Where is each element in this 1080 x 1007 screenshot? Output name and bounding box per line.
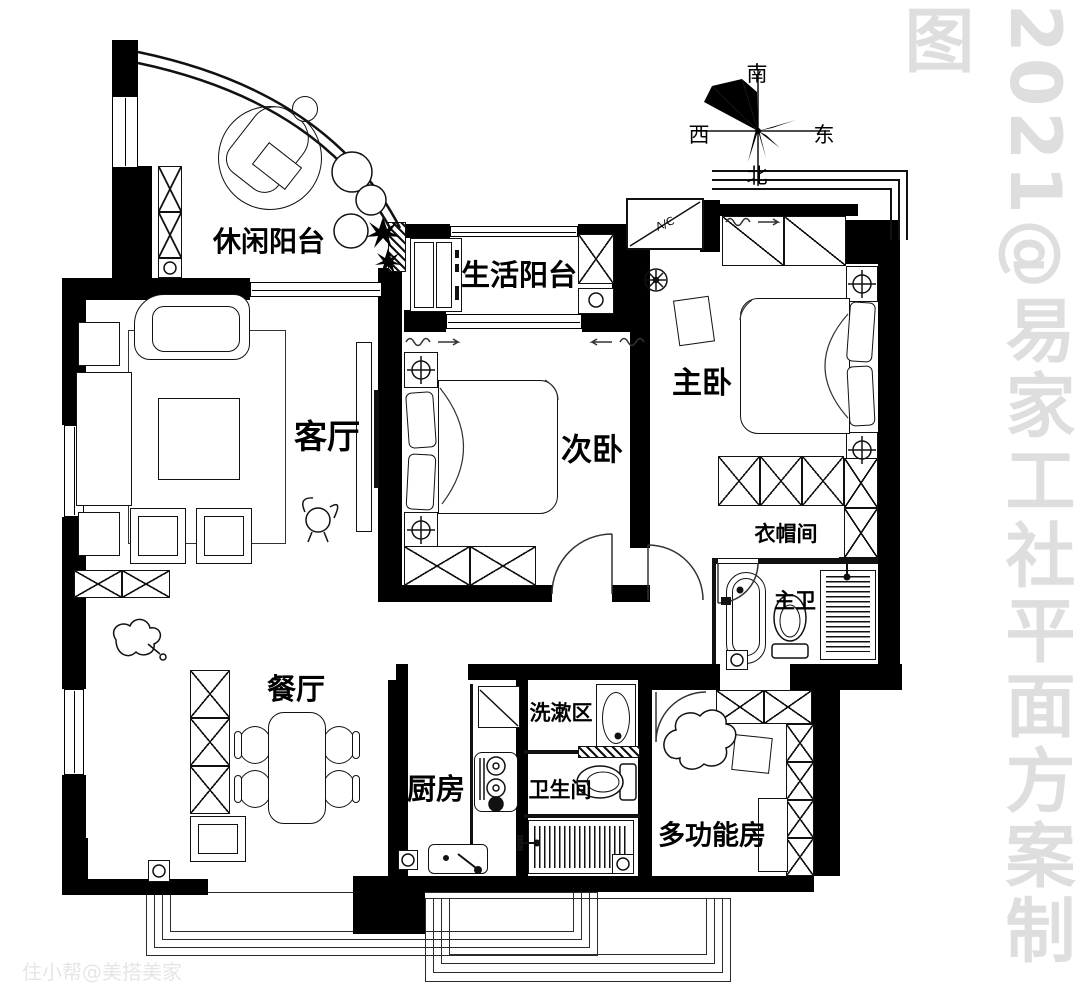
wardrobe-cell [784, 216, 846, 266]
window [64, 689, 84, 775]
wardrobe-cell [716, 690, 764, 724]
compass-south-label: 南 [747, 58, 768, 88]
cabinet-column [190, 766, 230, 814]
dining-chair [238, 770, 272, 808]
sliding-window [446, 314, 582, 329]
wardrobe-cell [844, 458, 878, 508]
cabinet [158, 258, 182, 278]
bay-window-line [712, 188, 892, 190]
room-label-master-bedroom: 主卧 [672, 358, 732, 402]
wardrobe-cell [786, 800, 814, 838]
threshold-hatch [578, 746, 640, 758]
room-label-second-bedroom: 次卧 [561, 425, 623, 470]
floor-plan: A/C [0, 0, 1080, 1007]
wall [712, 564, 716, 680]
stove [474, 752, 518, 812]
dining-chair [322, 726, 356, 764]
side-table [78, 322, 120, 366]
room-label-master-bath: 主卫 [774, 585, 816, 615]
kitchen-sink [428, 844, 488, 874]
pillow [846, 365, 875, 426]
room-label-living-room: 客厅 [294, 410, 360, 458]
compass-west-label: 西 [689, 119, 710, 149]
figure-doodle [303, 498, 338, 542]
wardrobe-cell [786, 762, 814, 800]
wall [404, 224, 450, 238]
wardrobe-cell [786, 724, 814, 762]
wall-hatch [388, 222, 406, 272]
pillow [846, 301, 876, 363]
room-label-dining-room: 餐厅 [267, 666, 325, 708]
side-table [78, 512, 120, 556]
room-label-wash-area: 洗漱区 [530, 697, 593, 727]
pillow [405, 391, 437, 449]
nightstand [846, 266, 878, 302]
plant-doodle [114, 619, 166, 660]
porch-steps [449, 898, 707, 955]
nightstand [404, 512, 438, 548]
wardrobe-cell [404, 546, 470, 586]
compass-east-label: 东 [814, 119, 835, 149]
wall [388, 680, 408, 876]
counter-edge [470, 684, 473, 870]
room-label-bathroom: 卫生间 [529, 774, 592, 804]
washing-machine-door [414, 242, 434, 308]
compass-north-label: 北 [747, 160, 768, 190]
balcony-sliding-door [250, 282, 382, 297]
bed [438, 380, 558, 514]
wall [112, 40, 138, 98]
tv [374, 390, 379, 488]
wall [396, 664, 408, 680]
wall [612, 585, 650, 602]
wall [396, 585, 552, 602]
wardrobe-cell [764, 690, 812, 724]
wall [638, 680, 652, 876]
washing-machine-door [436, 242, 452, 308]
wardrobe-cell [722, 216, 784, 266]
side-ball-table [292, 96, 318, 122]
storage-column [158, 166, 182, 212]
room-label-leisure-balcony: 休闲阳台 [213, 220, 325, 260]
fridge [478, 686, 520, 728]
room-label-kitchen: 厨房 [407, 766, 465, 808]
shower-mat [826, 576, 870, 652]
wardrobe-cell [470, 546, 536, 586]
room-label-cloakroom: 衣帽间 [755, 518, 818, 548]
low-cabinet [122, 570, 170, 598]
wall [378, 268, 402, 602]
low-cabinet [74, 570, 122, 598]
bathtub-inner [732, 578, 760, 656]
sofa [76, 372, 132, 506]
wall [84, 879, 208, 895]
window [450, 226, 578, 237]
floor-drain [612, 854, 634, 874]
wall [353, 876, 425, 934]
wardrobe-cell [760, 456, 802, 506]
wardrobe-cell [718, 456, 760, 506]
bed [740, 298, 850, 434]
wall [112, 166, 152, 290]
wardrobe-cell [802, 456, 844, 506]
watermark-vertical: 2021@易家工社平面方案制图 [884, 4, 1080, 1007]
desk [673, 296, 715, 347]
floor-drain [398, 850, 418, 870]
bay-window-line [712, 179, 900, 181]
sideboard-door [198, 824, 238, 854]
wardrobe-cell [786, 838, 814, 876]
pillow [406, 453, 437, 510]
coffee-table [158, 398, 240, 480]
watermark-bottom-left: 住小帮@美搭美家 [22, 956, 182, 985]
dining-chair [322, 770, 356, 808]
floor-table [731, 734, 773, 774]
dining-chair [238, 726, 272, 764]
room-label-living-balcony: 生活阳台 [461, 252, 577, 294]
nightstand [404, 352, 438, 388]
wardrobe-cell [844, 508, 878, 558]
ottoman-cushion [204, 516, 244, 556]
wall [516, 876, 652, 892]
cabinet-column [190, 670, 230, 718]
wall [404, 310, 446, 332]
entry-column [148, 860, 170, 882]
balcony-cabinet [578, 234, 614, 284]
wall [630, 248, 650, 548]
bay-window-line [712, 170, 908, 172]
chaise-sofa-cushion [152, 306, 240, 352]
floor-drain [726, 650, 748, 670]
partition [524, 814, 640, 818]
wall [650, 876, 814, 892]
wall [648, 664, 720, 690]
wall [468, 664, 648, 680]
wall [812, 690, 840, 876]
room-label-multi-function: 多功能房 [658, 814, 766, 853]
vanity-basin [602, 692, 630, 744]
wall [700, 204, 858, 216]
cabinet-column [190, 718, 230, 766]
dining-table [268, 712, 326, 824]
storage-column [158, 212, 182, 258]
ottoman-cushion [138, 516, 178, 556]
window [112, 96, 138, 168]
balcony-sink [578, 288, 614, 314]
